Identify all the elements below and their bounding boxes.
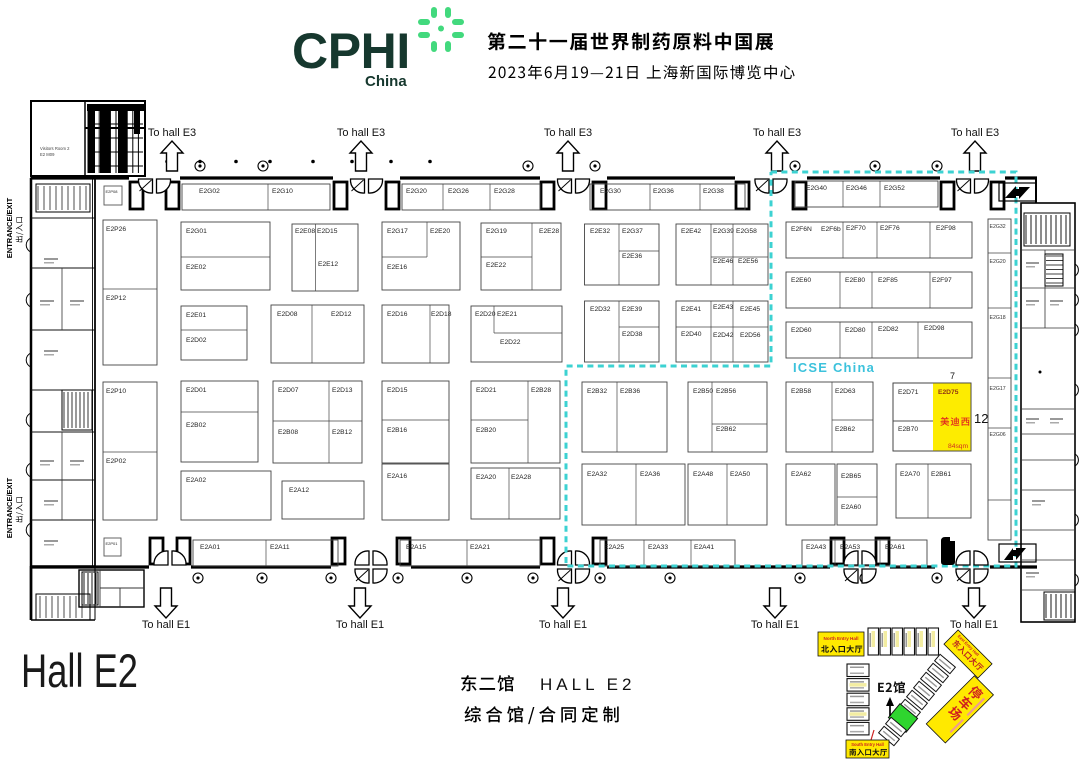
svg-text:E2A28: E2A28	[511, 474, 531, 481]
svg-text:E2F6N: E2F6N	[791, 226, 812, 233]
svg-text:E2P12: E2P12	[106, 295, 126, 302]
svg-text:E2G19: E2G19	[486, 228, 507, 235]
svg-text:E2D42: E2D42	[713, 332, 734, 339]
svg-text:E2A41: E2A41	[694, 544, 714, 551]
svg-text:South Entry Hall: South Entry Hall	[851, 742, 884, 747]
svg-text:E2A50: E2A50	[730, 471, 750, 478]
svg-text:E2D82: E2D82	[878, 326, 899, 333]
svg-text:84sqm: 84sqm	[948, 443, 969, 450]
svg-text:E2G20: E2G20	[406, 188, 427, 195]
svg-text:E2F97: E2F97	[932, 277, 952, 284]
svg-text:E2D56: E2D56	[740, 332, 761, 339]
svg-text:E2G30: E2G30	[600, 188, 621, 195]
svg-text:E2P10: E2P10	[106, 388, 126, 395]
svg-text:E2D07: E2D07	[278, 387, 299, 394]
svg-text:To hall E1: To hall E1	[539, 619, 587, 631]
svg-text:E2E42: E2E42	[681, 228, 701, 235]
svg-text:E2G06: E2G06	[990, 432, 1006, 438]
svg-text:E2B62: E2B62	[716, 426, 736, 433]
svg-text:E2A36: E2A36	[640, 471, 660, 478]
svg-text:E2P08: E2P08	[106, 189, 119, 194]
svg-text:E2A01: E2A01	[200, 544, 220, 551]
svg-text:E2E08: E2E08	[295, 228, 315, 235]
svg-text:E2D15: E2D15	[317, 228, 338, 235]
svg-text:To hall E3: To hall E3	[753, 127, 801, 139]
svg-text:E2A20: E2A20	[476, 474, 496, 481]
svg-text:E2A16: E2A16	[387, 473, 407, 480]
svg-text:E2B20: E2B20	[476, 427, 496, 434]
svg-text:E2F85: E2F85	[878, 277, 898, 284]
svg-text:E2E41: E2E41	[681, 306, 701, 313]
svg-text:E2G36: E2G36	[653, 188, 674, 195]
svg-text:E2P26: E2P26	[106, 226, 126, 233]
svg-text:E2A43: E2A43	[806, 544, 826, 551]
svg-text:Visitors Room 2: Visitors Room 2	[40, 146, 70, 151]
svg-text:E2A33: E2A33	[648, 544, 668, 551]
svg-text:E2B12: E2B12	[332, 429, 352, 436]
svg-text:E2D38: E2D38	[622, 331, 643, 338]
svg-text:E2A53: E2A53	[840, 544, 860, 551]
svg-text:E2D02: E2D02	[186, 337, 207, 344]
svg-text:E2B62: E2B62	[835, 426, 855, 433]
svg-text:E2G37: E2G37	[622, 228, 643, 235]
svg-text:E2D40: E2D40	[681, 331, 702, 338]
svg-text:E2G20: E2G20	[990, 259, 1006, 265]
svg-text:E2F6b: E2F6b	[821, 226, 841, 233]
svg-text:To hall E1: To hall E1	[751, 619, 799, 631]
svg-text:E2G52: E2G52	[884, 185, 905, 192]
svg-text:Hall E2: Hall E2	[21, 644, 138, 697]
svg-text:E2E80: E2E80	[845, 277, 865, 284]
svg-text:E2D16: E2D16	[387, 311, 408, 318]
svg-text:E2G01: E2G01	[186, 228, 207, 235]
svg-text:E2D21: E2D21	[476, 387, 497, 394]
svg-text:E2G39: E2G39	[713, 228, 734, 235]
svg-text:ENTRANCE/EXIT: ENTRANCE/EXIT	[5, 197, 14, 258]
svg-text:E2E39: E2E39	[622, 306, 642, 313]
svg-text:E2D63: E2D63	[835, 388, 856, 395]
svg-text:E2D15: E2D15	[387, 387, 408, 394]
svg-text:E2A25: E2A25	[604, 544, 624, 551]
svg-text:E2B32: E2B32	[587, 388, 607, 395]
svg-text:E2E56: E2E56	[738, 258, 758, 265]
svg-text:E2A32: E2A32	[587, 471, 607, 478]
svg-text:E2D80: E2D80	[845, 327, 866, 334]
svg-text:E2E21: E2E21	[497, 311, 517, 318]
svg-text:E2F76: E2F76	[880, 225, 900, 232]
svg-text:12: 12	[974, 411, 988, 426]
svg-text:E2E12: E2E12	[318, 261, 338, 268]
svg-text:To hall E3: To hall E3	[951, 127, 999, 139]
svg-text:E2G18: E2G18	[990, 315, 1006, 321]
svg-text:E2E32: E2E32	[590, 228, 610, 235]
svg-text:E2G26: E2G26	[448, 188, 469, 195]
svg-text:E2E16: E2E16	[387, 264, 407, 271]
svg-text:E2E43: E2E43	[713, 304, 733, 311]
svg-text:E2A12: E2A12	[289, 487, 309, 494]
svg-text:E2D22: E2D22	[500, 339, 521, 346]
svg-text:ICSE China: ICSE China	[793, 360, 875, 375]
svg-text:E2E36: E2E36	[622, 253, 642, 260]
svg-text:E2A21: E2A21	[470, 544, 490, 551]
svg-text:E2G28: E2G28	[494, 188, 515, 195]
svg-text:E2A15: E2A15	[406, 544, 426, 551]
svg-text:To hall E1: To hall E1	[142, 619, 190, 631]
svg-text:E2D98: E2D98	[924, 325, 945, 332]
svg-text:E2E28: E2E28	[539, 228, 559, 235]
svg-text:CPHI: CPHI	[292, 23, 410, 79]
svg-text:E2B16: E2B16	[387, 427, 407, 434]
svg-text:HALL E2: HALL E2	[540, 675, 635, 694]
svg-text:E2B70: E2B70	[898, 426, 918, 433]
svg-text:E2B50: E2B50	[693, 388, 713, 395]
svg-text:E2G17: E2G17	[990, 386, 1006, 392]
svg-text:E2G40: E2G40	[806, 185, 827, 192]
svg-text:E2D13: E2D13	[332, 387, 353, 394]
svg-text:To hall E3: To hall E3	[544, 127, 592, 139]
svg-text:E2B28: E2B28	[531, 387, 551, 394]
svg-text:E2A60: E2A60	[841, 504, 861, 511]
svg-text:To hall E1: To hall E1	[950, 619, 998, 631]
svg-text:E2E20: E2E20	[430, 228, 450, 235]
svg-text:E2B65: E2B65	[841, 473, 861, 480]
svg-text:E2E45: E2E45	[740, 306, 760, 313]
svg-text:E2G17: E2G17	[387, 228, 408, 235]
svg-text:E2E46: E2E46	[713, 258, 733, 265]
svg-text:E2B61: E2B61	[931, 471, 951, 478]
svg-text:E2F98: E2F98	[936, 225, 956, 232]
svg-text:E2A11: E2A11	[270, 544, 290, 551]
svg-text:E2D75: E2D75	[938, 389, 959, 396]
svg-text:To hall E3: To hall E3	[337, 127, 385, 139]
svg-text:E2 M09: E2 M09	[40, 152, 55, 157]
svg-text:E2D18: E2D18	[431, 311, 452, 318]
svg-text:E2E02: E2E02	[186, 264, 206, 271]
svg-text:E2E60: E2E60	[791, 277, 811, 284]
svg-text:E2F70: E2F70	[846, 225, 866, 232]
svg-text:E2P01: E2P01	[106, 541, 119, 546]
svg-text:E2G58: E2G58	[736, 228, 757, 235]
svg-text:E2G10: E2G10	[272, 188, 293, 195]
svg-text:E2A02: E2A02	[186, 477, 206, 484]
svg-text:ENTRANCE/EXIT: ENTRANCE/EXIT	[5, 477, 14, 538]
svg-text:E2G32: E2G32	[990, 224, 1006, 230]
svg-text:E2D60: E2D60	[791, 327, 812, 334]
svg-text:E2A48: E2A48	[693, 471, 713, 478]
svg-text:E2B02: E2B02	[186, 422, 206, 429]
svg-text:E2E22: E2E22	[486, 262, 506, 269]
svg-text:To hall E3: To hall E3	[148, 127, 196, 139]
svg-text:E2D08: E2D08	[277, 311, 298, 318]
svg-text:E2B56: E2B56	[716, 388, 736, 395]
svg-text:E2D01: E2D01	[186, 387, 207, 394]
svg-text:E2G38: E2G38	[703, 188, 724, 195]
svg-text:E2D32: E2D32	[590, 306, 611, 313]
svg-text:E2E01: E2E01	[186, 312, 206, 319]
svg-text:China: China	[365, 73, 407, 90]
svg-text:E2D20: E2D20	[475, 311, 496, 318]
svg-text:E2D71: E2D71	[898, 389, 919, 396]
svg-text:E2G02: E2G02	[199, 188, 220, 195]
svg-text:7: 7	[950, 371, 955, 381]
svg-text:To hall E1: To hall E1	[336, 619, 384, 631]
svg-text:E2G46: E2G46	[846, 185, 867, 192]
svg-text:E2P02: E2P02	[106, 458, 126, 465]
svg-text:E2B36: E2B36	[620, 388, 640, 395]
svg-text:E2A61: E2A61	[885, 544, 905, 551]
svg-text:North Entry Hall: North Entry Hall	[824, 636, 859, 641]
svg-text:E2D12: E2D12	[331, 311, 352, 318]
svg-text:E2B08: E2B08	[278, 429, 298, 436]
svg-text:E2A62: E2A62	[791, 471, 811, 478]
svg-text:E2B58: E2B58	[791, 388, 811, 395]
svg-text:E2A70: E2A70	[900, 471, 920, 478]
